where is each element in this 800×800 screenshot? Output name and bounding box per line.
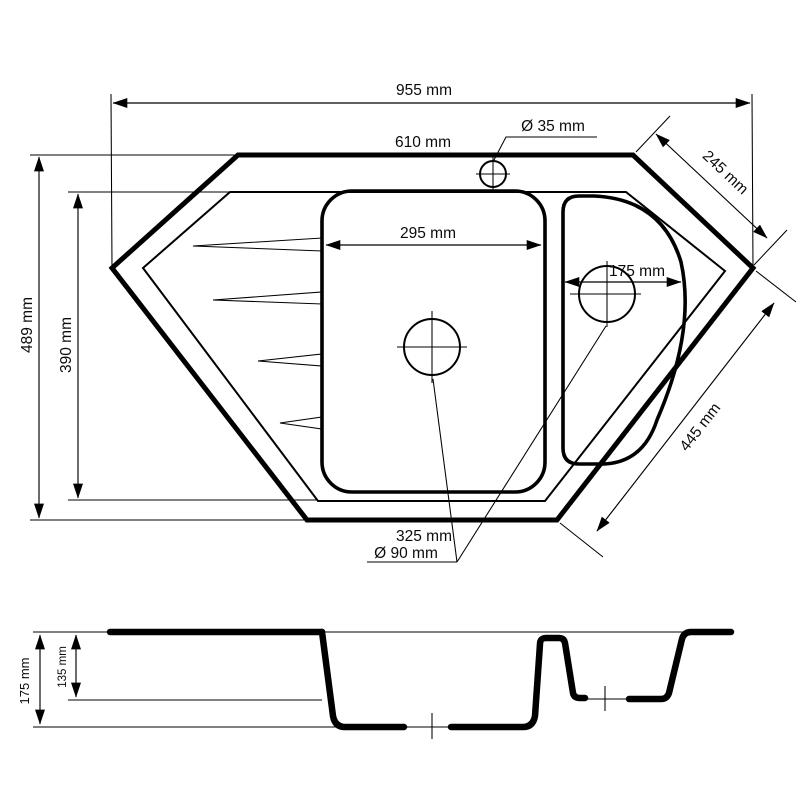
dim-label-top-edge: 610 mm <box>395 134 451 151</box>
dim-top-right-edge: 245 mm <box>636 116 787 265</box>
dim-label-tap-hole: Ø 35 mm <box>521 118 585 135</box>
dim-label-main-bowl-depth: 175 mm <box>17 658 32 705</box>
dim-bottom-right-edge: 445 mm <box>560 271 796 557</box>
dim-label-overall-width: 955 mm <box>396 82 452 99</box>
section-view: 175 mm 135 mm <box>17 632 731 739</box>
main-drain <box>397 311 467 383</box>
profile-main-bowl-left <box>322 632 404 727</box>
tap-hole <box>476 156 510 193</box>
dim-label-inner-depth: 390 mm <box>58 317 75 373</box>
sink-technical-drawing: 955 mm 610 mm Ø 35 mm 245 mm 295 mm 175 … <box>0 0 800 800</box>
dim-label-small-bowl-depth: 135 mm <box>57 646 69 688</box>
dim-label-main-basin-width: 295 mm <box>400 225 456 242</box>
dim-inner-depth: 390 mm <box>58 192 318 500</box>
dim-small-bowl-depth: 135 mm <box>57 635 76 697</box>
top-view <box>112 155 753 520</box>
dim-label-bottom-edge: 325 mm <box>396 528 452 545</box>
dim-main-basin-width: 295 mm <box>326 225 541 245</box>
section-profile <box>110 632 731 739</box>
dim-label-small-basin-width: 175 mm <box>609 263 665 280</box>
dim-label-top-right-edge: 245 mm <box>699 147 751 198</box>
drainer-groove <box>213 292 322 304</box>
drawing-svg: 955 mm 610 mm Ø 35 mm 245 mm 295 mm 175 … <box>0 0 800 800</box>
dim-label-overall-depth: 489 mm <box>19 297 36 353</box>
profile-main-bowl-right-and-divider <box>451 638 585 727</box>
drainer-groove <box>193 238 322 251</box>
dim-label-drain-diameter: Ø 90 mm <box>374 545 438 562</box>
dim-main-bowl-depth: 175 mm <box>17 635 40 724</box>
drainer-groove <box>280 417 322 429</box>
dim-label-bottom-right-edge: 445 mm <box>677 400 725 455</box>
profile-small-bowl-right-and-rim <box>629 632 731 699</box>
dim-drain-diameter: Ø 90 mm <box>367 326 606 562</box>
drainer-groove <box>258 354 322 366</box>
small-basin <box>563 196 685 464</box>
